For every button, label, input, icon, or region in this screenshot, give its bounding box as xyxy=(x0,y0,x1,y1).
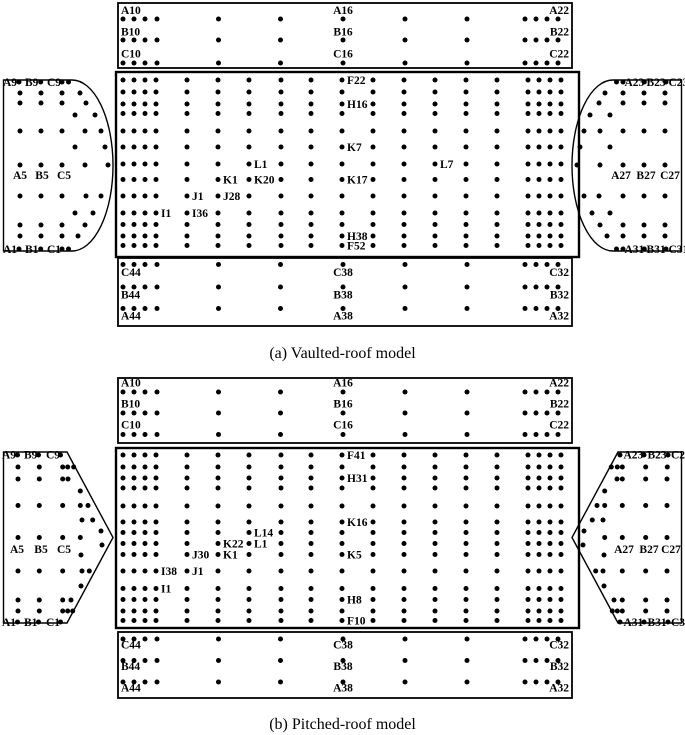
tap-label: C10 xyxy=(121,420,141,432)
pressure-tap-dot xyxy=(121,552,126,557)
pressure-tap-dot xyxy=(615,609,620,614)
pressure-tap-dot xyxy=(340,530,345,535)
pressure-tap-dot xyxy=(464,552,469,557)
pressure-tap-dot xyxy=(132,390,137,395)
pressure-tap-dot xyxy=(495,129,500,134)
pressure-tap-dot xyxy=(371,243,376,248)
tap-label: K7 xyxy=(347,142,362,154)
pressure-tap-dot xyxy=(537,586,542,591)
pressure-tap-layout-figure: A10B10C10A16B16C16A22B22C22F22H16K7L1L7K… xyxy=(0,0,685,735)
pressure-tap-dot xyxy=(663,91,668,96)
pressure-tap-dot xyxy=(143,609,148,614)
pressure-tap-dot xyxy=(16,609,21,614)
pressure-tap-dot xyxy=(537,162,542,167)
pressure-tap-dot xyxy=(37,503,42,508)
pressure-tap-dot xyxy=(216,262,221,267)
pressure-tap-dot xyxy=(621,223,626,228)
pressure-tap-dot xyxy=(132,541,137,546)
tap-label: I1 xyxy=(161,208,171,220)
pressure-tap-dot xyxy=(65,609,70,614)
pressure-tap-dot xyxy=(132,194,137,199)
pressure-tap-dot xyxy=(608,145,613,150)
tap-label: B32 xyxy=(550,290,569,302)
pressure-tap-dot xyxy=(132,61,137,66)
pressure-tap-dot xyxy=(526,597,531,602)
pressure-tap-dot xyxy=(154,162,159,167)
tap-label: K16 xyxy=(347,517,368,529)
pressure-tap-dot xyxy=(402,177,407,182)
pressure-tap-dot xyxy=(597,194,602,199)
pressure-tap-dot xyxy=(185,177,190,182)
pressure-tap-dot xyxy=(154,569,159,574)
pressure-tap-dot xyxy=(132,504,137,509)
tap-label: F52 xyxy=(347,241,366,253)
pressure-tap-dot xyxy=(548,465,553,470)
tap-label: H8 xyxy=(347,595,362,607)
pressure-tap-dot xyxy=(143,486,148,491)
pressure-tap-dot xyxy=(99,529,104,534)
pressure-tap-dot xyxy=(465,432,470,437)
pressure-tap-dot xyxy=(548,222,553,227)
pressure-tap-dot xyxy=(154,504,159,509)
pressure-tap-dot xyxy=(340,162,345,167)
pressure-tap-dot xyxy=(402,504,407,509)
pressure-tap-dot xyxy=(216,129,221,134)
pressure-tap-dot xyxy=(590,211,595,216)
pressure-tap-dot xyxy=(216,658,221,663)
pressure-tap-dot xyxy=(155,306,160,311)
pressure-tap-dot xyxy=(278,38,283,43)
pressure-tap-dot xyxy=(154,530,159,535)
pressure-tap-dot xyxy=(132,243,137,248)
pressure-tap-dot xyxy=(593,569,598,574)
pressure-tap-dot xyxy=(279,476,284,481)
pressure-tap-dot xyxy=(216,162,221,167)
pressure-tap-dot xyxy=(247,222,252,227)
pressure-tap-dot xyxy=(643,609,648,614)
tap-label: J28 xyxy=(223,191,241,203)
pressure-tap-dot xyxy=(559,243,564,248)
pressure-tap-dot xyxy=(537,569,542,574)
pressure-tap-dot xyxy=(526,211,531,216)
pressure-tap-dot xyxy=(340,552,345,557)
pressure-tap-dot xyxy=(559,102,564,107)
pressure-tap-dot xyxy=(465,38,470,43)
pressure-tap-dot xyxy=(155,680,160,685)
pressure-tap-dot xyxy=(402,90,407,95)
pressure-tap-dot xyxy=(523,411,528,416)
pressure-tap-dot xyxy=(247,234,252,239)
tap-label: A22 xyxy=(549,5,569,17)
tap-label: A5 xyxy=(13,170,27,182)
pressure-tap-dot xyxy=(548,618,553,623)
pressure-tap-dot xyxy=(154,618,159,623)
pressure-tap-dot xyxy=(154,453,159,458)
pressure-tap-dot xyxy=(37,609,42,614)
pressure-tap-dot xyxy=(143,234,148,239)
pressure-tap-dot xyxy=(403,680,408,685)
pressure-tap-dot xyxy=(185,243,190,248)
tap-label: F22 xyxy=(347,75,366,87)
pressure-tap-dot xyxy=(143,504,148,509)
pressure-tap-dot xyxy=(495,476,500,481)
pressure-tap-dot xyxy=(132,486,137,491)
pressure-tap-dot xyxy=(402,243,407,248)
pressure-tap-dot xyxy=(559,586,564,591)
tap-label: C1 xyxy=(46,617,60,629)
pressure-tap-dot xyxy=(548,243,553,248)
pressure-tap-dot xyxy=(433,520,438,525)
pressure-tap-dot xyxy=(121,102,126,107)
pressure-tap-dot xyxy=(526,504,531,509)
pressure-tap-dot xyxy=(559,530,564,535)
pressure-tap-dot xyxy=(642,91,647,96)
pressure-tap-dot xyxy=(526,162,531,167)
pressure-tap-dot xyxy=(340,486,345,491)
pressure-tap-dot xyxy=(216,680,221,685)
pressure-tap-dot xyxy=(582,529,587,534)
pressure-tap-dot xyxy=(247,465,252,470)
pressure-tap-dot xyxy=(216,145,221,150)
pressure-tap-dot xyxy=(548,145,553,150)
pressure-tap-dot xyxy=(38,80,43,85)
pressure-tap-dot xyxy=(464,476,469,481)
pressure-tap-dot xyxy=(121,90,126,95)
pressure-tap-dot xyxy=(155,262,160,267)
pressure-tap-dot xyxy=(548,453,553,458)
pressure-tap-dot xyxy=(121,541,126,546)
pressure-tap-dot xyxy=(185,609,190,614)
pressure-tap-dot xyxy=(340,476,345,481)
pressure-tap-dot xyxy=(526,234,531,239)
pressure-tap-dot xyxy=(132,177,137,182)
pressure-tap-dot xyxy=(402,586,407,591)
pressure-tap-dot xyxy=(279,597,284,602)
pressure-tap-dot xyxy=(643,569,648,574)
pressure-tap-dot xyxy=(615,465,620,470)
pressure-tap-dot xyxy=(216,285,221,290)
pressure-tap-dot xyxy=(185,453,190,458)
pressure-tap-dot xyxy=(216,194,221,199)
pressure-tap-dot xyxy=(78,91,83,96)
pressure-tap-dot xyxy=(402,453,407,458)
pressure-tap-dot xyxy=(548,211,553,216)
pressure-tap-dot xyxy=(279,234,284,239)
pressure-tap-dot xyxy=(216,17,221,22)
pressure-tap-dot xyxy=(143,162,148,167)
pressure-tap-dot xyxy=(216,504,221,509)
pressure-tap-dot xyxy=(545,285,550,290)
pressure-tap-dot xyxy=(309,111,314,116)
pressure-tap-dot xyxy=(603,91,608,96)
pressure-tap-dot xyxy=(371,569,376,574)
pressure-tap-dot xyxy=(16,503,21,508)
tap-label: K17 xyxy=(347,175,368,187)
pressure-tap-dot xyxy=(185,111,190,116)
pressure-tap-dot xyxy=(216,465,221,470)
pressure-tap-dot xyxy=(403,262,408,267)
pressure-tap-dot xyxy=(39,129,44,134)
pressure-tap-dot xyxy=(642,234,647,239)
pressure-tap-dot xyxy=(523,285,528,290)
pressure-tap-dot xyxy=(642,101,647,106)
pressure-tap-dot xyxy=(132,211,137,216)
tap-label: B44 xyxy=(121,661,140,673)
pressure-tap-dot xyxy=(132,552,137,557)
pressure-tap-dot xyxy=(216,38,221,43)
b-top-wall-panel: A10B10C10A16B16C16A22B22C22 xyxy=(118,378,572,444)
pressure-tap-dot xyxy=(559,618,564,623)
pressure-tap-dot xyxy=(663,101,668,106)
pressure-tap-dot xyxy=(155,637,160,642)
pressure-tap-dot xyxy=(495,597,500,602)
pressure-tap-dot xyxy=(65,465,70,470)
pressure-tap-dot xyxy=(403,658,408,663)
tap-label: A27 xyxy=(614,544,634,556)
pressure-tap-dot xyxy=(143,38,148,43)
pressure-tap-dot xyxy=(247,541,252,546)
pressure-tap-dot xyxy=(60,194,65,199)
pressure-tap-dot xyxy=(402,234,407,239)
pressure-tap-dot xyxy=(154,145,159,150)
pressure-tap-dot xyxy=(464,586,469,591)
pressure-tap-dot xyxy=(402,541,407,546)
pressure-tap-dot xyxy=(121,111,126,116)
pressure-tap-dot xyxy=(548,111,553,116)
pressure-tap-dot xyxy=(121,432,126,437)
tap-label: J1 xyxy=(192,191,204,203)
pressure-tap-dot xyxy=(545,38,550,43)
tap-label: A44 xyxy=(121,683,141,695)
pressure-tap-dot xyxy=(185,552,190,557)
pressure-tap-dot xyxy=(340,243,345,248)
pressure-tap-dot xyxy=(143,637,148,642)
pressure-tap-dot xyxy=(121,504,126,509)
pressure-tap-dot xyxy=(523,262,528,267)
pressure-tap-dot xyxy=(216,618,221,623)
pressure-tap-dot xyxy=(495,234,500,239)
pressure-tap-dot xyxy=(340,541,345,546)
pressure-tap-dot xyxy=(602,553,607,558)
pressure-tap-dot xyxy=(665,465,670,470)
pressure-tap-dot xyxy=(216,486,221,491)
pressure-tap-dot xyxy=(143,453,148,458)
pressure-tap-dot xyxy=(548,520,553,525)
pressure-tap-dot xyxy=(185,465,190,470)
pressure-tap-dot xyxy=(534,285,539,290)
tap-label: B10 xyxy=(121,399,140,411)
pressure-tap-dot xyxy=(464,609,469,614)
pressure-tap-dot xyxy=(545,61,550,66)
pressure-tap-dot xyxy=(185,145,190,150)
pressure-tap-dot xyxy=(39,163,44,168)
tap-label: B22 xyxy=(550,399,569,411)
pressure-tap-dot xyxy=(279,569,284,574)
pressure-tap-dot xyxy=(642,223,647,228)
pressure-tap-dot xyxy=(309,222,314,227)
pressure-tap-dot xyxy=(16,535,21,540)
pressure-tap-dot xyxy=(402,78,407,83)
pressure-tap-dot xyxy=(559,177,564,182)
pressure-tap-dot xyxy=(66,477,71,482)
pressure-tap-dot xyxy=(465,390,470,395)
pressure-tap-dot xyxy=(121,211,126,216)
pressure-tap-dot xyxy=(526,486,531,491)
pressure-tap-dot xyxy=(185,530,190,535)
pressure-tap-dot xyxy=(621,234,626,239)
pressure-tap-dot xyxy=(537,453,542,458)
tap-label: C27 xyxy=(661,544,681,556)
pressure-tap-dot xyxy=(556,61,561,66)
pressure-tap-dot xyxy=(121,243,126,248)
pressure-tap-dot xyxy=(595,503,600,508)
pressure-tap-dot xyxy=(18,101,23,106)
pressure-tap-dot xyxy=(495,211,500,216)
pressure-tap-dot xyxy=(18,91,23,96)
pressure-tap-dot xyxy=(371,552,376,557)
pressure-tap-dot xyxy=(143,411,148,416)
pressure-tap-dot xyxy=(143,658,148,663)
pressure-tap-dot xyxy=(247,111,252,116)
pressure-tap-dot xyxy=(143,569,148,574)
tap-label: L7 xyxy=(440,159,454,171)
pressure-tap-dot xyxy=(464,129,469,134)
pressure-tap-dot xyxy=(548,162,553,167)
pressure-tap-dot xyxy=(309,234,314,239)
pressure-tap-dot xyxy=(87,569,92,574)
pressure-tap-dot xyxy=(154,102,159,107)
pressure-tap-dot xyxy=(465,17,470,22)
pressure-tap-dot xyxy=(537,609,542,614)
pressure-tap-dot xyxy=(601,569,606,574)
pressure-tap-dot xyxy=(83,223,88,228)
pressure-tap-dot xyxy=(597,101,602,106)
pressure-tap-dot xyxy=(154,129,159,134)
pressure-tap-dot xyxy=(523,38,528,43)
pressure-tap-dot xyxy=(60,503,65,508)
tap-label: B16 xyxy=(333,399,352,411)
pressure-tap-dot xyxy=(132,476,137,481)
pressure-tap-dot xyxy=(66,247,71,252)
pressure-tap-dot xyxy=(216,306,221,311)
pressure-tap-dot xyxy=(534,637,539,642)
pressure-tap-dot xyxy=(663,194,668,199)
pressure-tap-dot xyxy=(340,194,345,199)
pressure-tap-dot xyxy=(578,145,583,150)
pressure-tap-dot xyxy=(309,530,314,535)
pressure-tap-dot xyxy=(598,223,603,228)
pressure-tap-dot xyxy=(402,618,407,623)
pressure-tap-dot xyxy=(526,552,531,557)
pressure-tap-dot xyxy=(643,503,648,508)
pressure-tap-dot xyxy=(132,597,137,602)
pressure-tap-dot xyxy=(279,465,284,470)
pressure-tap-dot xyxy=(309,504,314,509)
pressure-tap-dot xyxy=(537,486,542,491)
pressure-tap-dot xyxy=(340,129,345,134)
pressure-tap-dot xyxy=(216,569,221,574)
pressure-tap-dot xyxy=(247,597,252,602)
tap-label: B38 xyxy=(333,290,352,302)
pressure-tap-dot xyxy=(545,411,550,416)
pressure-tap-dot xyxy=(495,486,500,491)
pressure-tap-dot xyxy=(132,78,137,83)
pressure-tap-dot xyxy=(143,222,148,227)
pressure-tap-dot xyxy=(559,609,564,614)
pressure-tap-dot xyxy=(143,520,148,525)
pressure-tap-dot xyxy=(86,503,91,508)
pressure-tap-dot xyxy=(185,222,190,227)
pressure-tap-dot xyxy=(537,129,542,134)
pressure-tap-dot xyxy=(38,247,43,252)
pressure-tap-dot xyxy=(309,177,314,182)
pressure-tap-dot xyxy=(278,285,283,290)
pressure-tap-dot xyxy=(464,194,469,199)
b-roof-panel: F41H31K16L14K22L1J30K1K5I38J1I1H8F10 xyxy=(116,448,579,628)
pressure-tap-dot xyxy=(433,530,438,535)
pressure-tap-dot xyxy=(143,432,148,437)
pressure-tap-dot xyxy=(216,90,221,95)
pressure-tap-dot xyxy=(121,465,126,470)
pressure-tap-dot xyxy=(84,101,89,106)
pressure-tap-dot xyxy=(495,162,500,167)
pressure-tap-dot xyxy=(143,78,148,83)
pressure-tap-dot xyxy=(247,102,252,107)
pressure-tap-dot xyxy=(39,223,44,228)
tap-label: A31 xyxy=(625,244,645,256)
tap-label: B44 xyxy=(121,290,140,302)
pressure-tap-dot xyxy=(18,194,23,199)
pressure-tap-dot xyxy=(526,586,531,591)
pressure-tap-dot xyxy=(402,486,407,491)
pressure-tap-dot xyxy=(309,129,314,134)
pressure-tap-dot xyxy=(433,129,438,134)
pressure-tap-dot xyxy=(154,609,159,614)
pressure-tap-dot xyxy=(495,569,500,574)
pressure-tap-dot xyxy=(279,102,284,107)
pressure-tap-dot xyxy=(663,129,668,134)
pressure-tap-dot xyxy=(216,111,221,116)
pressure-tap-dot xyxy=(534,411,539,416)
pressure-tap-dot xyxy=(279,504,284,509)
pressure-tap-dot xyxy=(60,465,65,470)
pressure-tap-dot xyxy=(526,453,531,458)
pressure-tap-dot xyxy=(39,194,44,199)
pressure-tap-dot xyxy=(79,584,84,589)
tap-label: A32 xyxy=(549,683,569,695)
pressure-tap-dot xyxy=(154,177,159,182)
pressure-tap-dot xyxy=(278,637,283,642)
pressure-tap-dot xyxy=(559,222,564,227)
pressure-tap-dot xyxy=(433,586,438,591)
pressure-tap-dot xyxy=(143,194,148,199)
pressure-tap-dot xyxy=(537,102,542,107)
pressure-tap-dot xyxy=(143,476,148,481)
pressure-tap-dot xyxy=(309,552,314,557)
pressure-tap-dot xyxy=(620,535,625,540)
pressure-tap-dot xyxy=(247,618,252,623)
pressure-tap-dot xyxy=(537,504,542,509)
pressure-tap-dot xyxy=(537,211,542,216)
pressure-tap-dot xyxy=(121,17,126,22)
pressure-tap-dot xyxy=(465,680,470,685)
pressure-tap-dot xyxy=(559,162,564,167)
pressure-tap-dot xyxy=(556,432,561,437)
pressure-tap-dot xyxy=(76,234,81,239)
pressure-tap-dot xyxy=(548,569,553,574)
pressure-tap-dot xyxy=(614,247,619,252)
tap-label: B5 xyxy=(35,170,49,182)
